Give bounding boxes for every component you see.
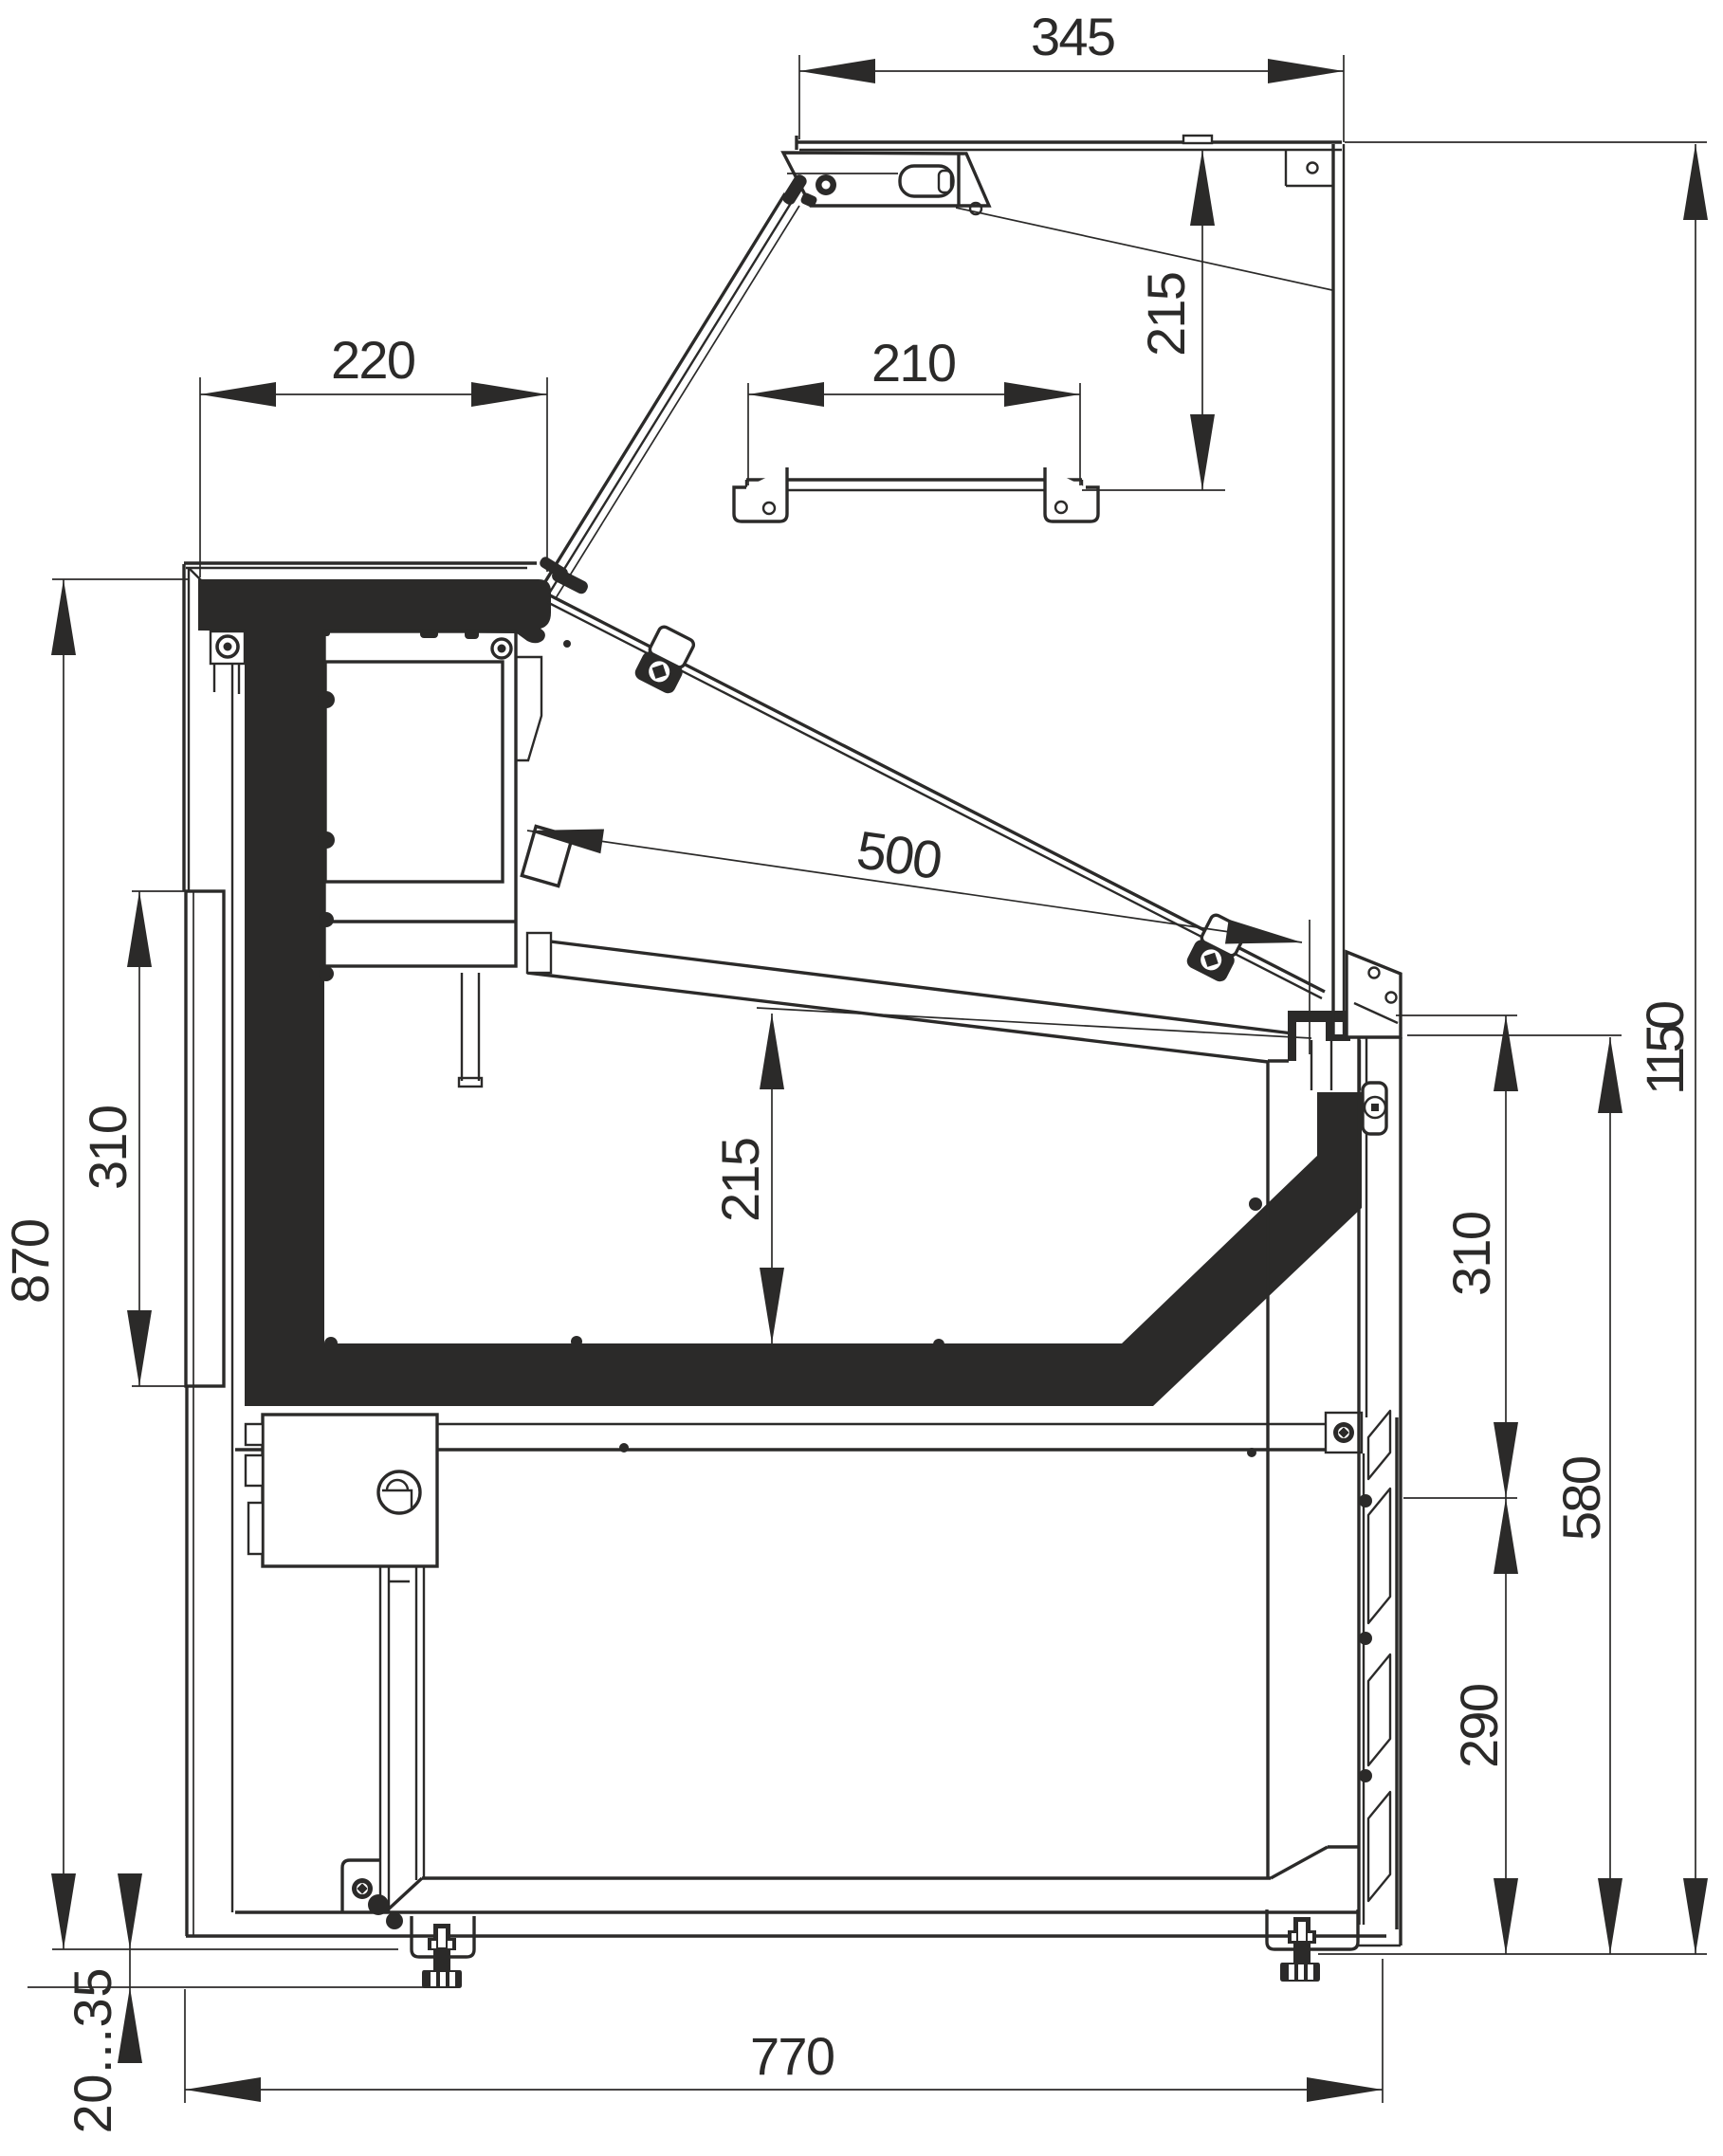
svg-text:215: 215: [710, 1137, 770, 1222]
svg-text:210: 210: [871, 333, 957, 393]
svg-text:20...35: 20...35: [63, 1968, 122, 2134]
svg-text:580: 580: [1551, 1455, 1611, 1541]
svg-text:215: 215: [1136, 271, 1196, 356]
svg-text:345: 345: [1031, 7, 1116, 66]
svg-text:220: 220: [331, 330, 416, 390]
svg-text:310: 310: [78, 1105, 137, 1190]
svg-text:870: 870: [0, 1218, 60, 1304]
svg-text:770: 770: [750, 2026, 835, 2086]
svg-text:1150: 1150: [1635, 1000, 1695, 1095]
svg-text:290: 290: [1449, 1683, 1509, 1768]
svg-text:310: 310: [1441, 1211, 1501, 1296]
svg-text:500: 500: [853, 819, 946, 890]
